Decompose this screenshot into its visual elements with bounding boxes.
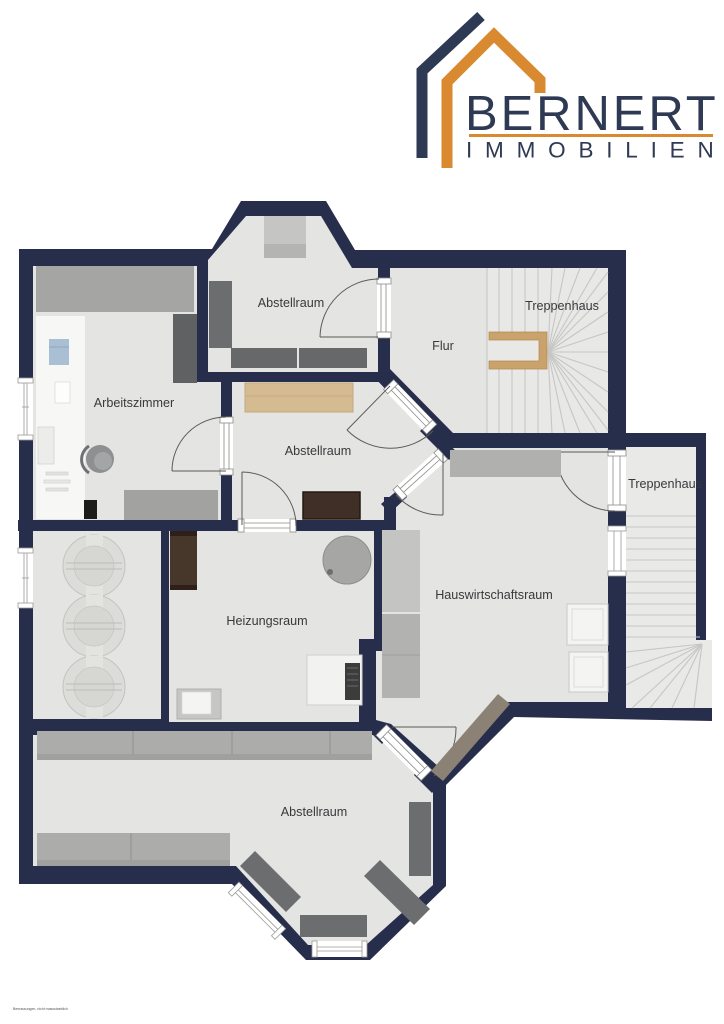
svg-text:Abstellraum: Abstellraum <box>281 805 348 819</box>
svg-text:Treppenhaus: Treppenhaus <box>628 477 702 491</box>
svg-text:BERNERT: BERNERT <box>465 87 719 141</box>
svg-text:Arbeitszimmer: Arbeitszimmer <box>94 396 174 410</box>
svg-text:Hauswirtschaftsraum: Hauswirtschaftsraum <box>435 588 553 602</box>
svg-text:Flur: Flur <box>432 339 454 353</box>
svg-text:Bemassungen, nicht massstaebli: Bemassungen, nicht massstaeblich <box>13 1007 68 1011</box>
svg-text:Heizungsraum: Heizungsraum <box>226 614 307 628</box>
svg-text:Abstellraum: Abstellraum <box>285 444 352 458</box>
svg-text:IMMOBILIEN: IMMOBILIEN <box>466 138 724 163</box>
svg-text:Treppenhaus: Treppenhaus <box>525 299 599 313</box>
svg-text:Abstellraum: Abstellraum <box>258 296 325 310</box>
